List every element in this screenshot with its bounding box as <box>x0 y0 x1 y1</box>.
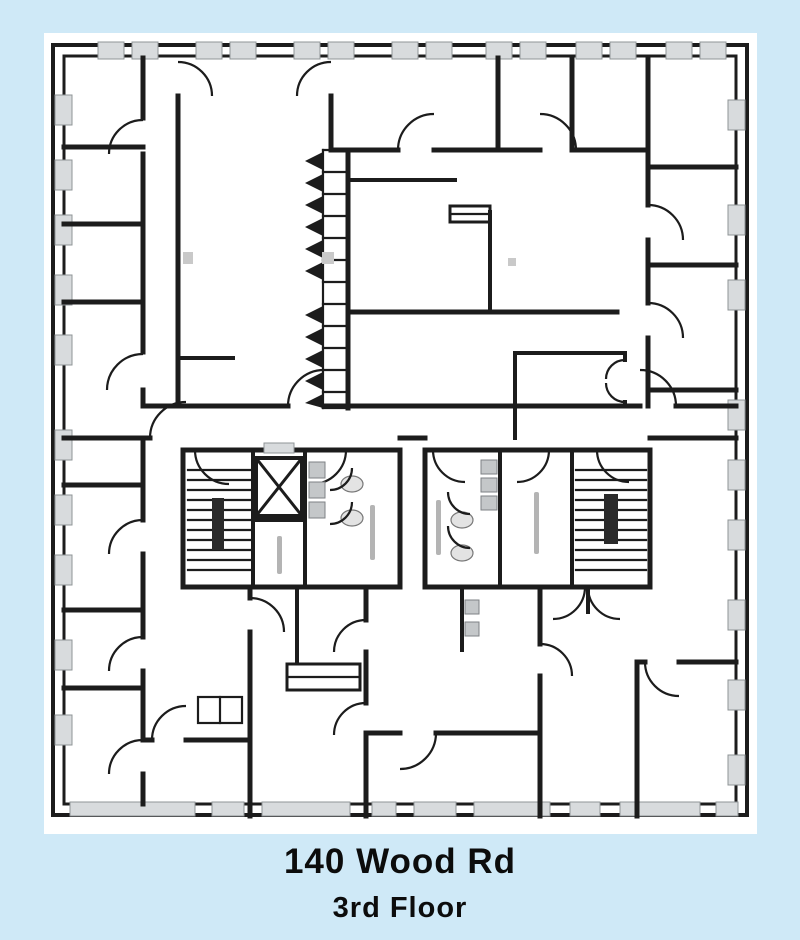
address-title: 140 Wood Rd <box>0 842 800 882</box>
mech-room-label <box>534 492 539 554</box>
floor-plan-drawing <box>0 0 800 940</box>
floor-subtitle: 3rd Floor <box>0 892 800 925</box>
page: 140 Wood Rd 3rd Floor <box>0 0 800 940</box>
closet-label <box>277 536 282 574</box>
floor-plan <box>0 0 800 940</box>
